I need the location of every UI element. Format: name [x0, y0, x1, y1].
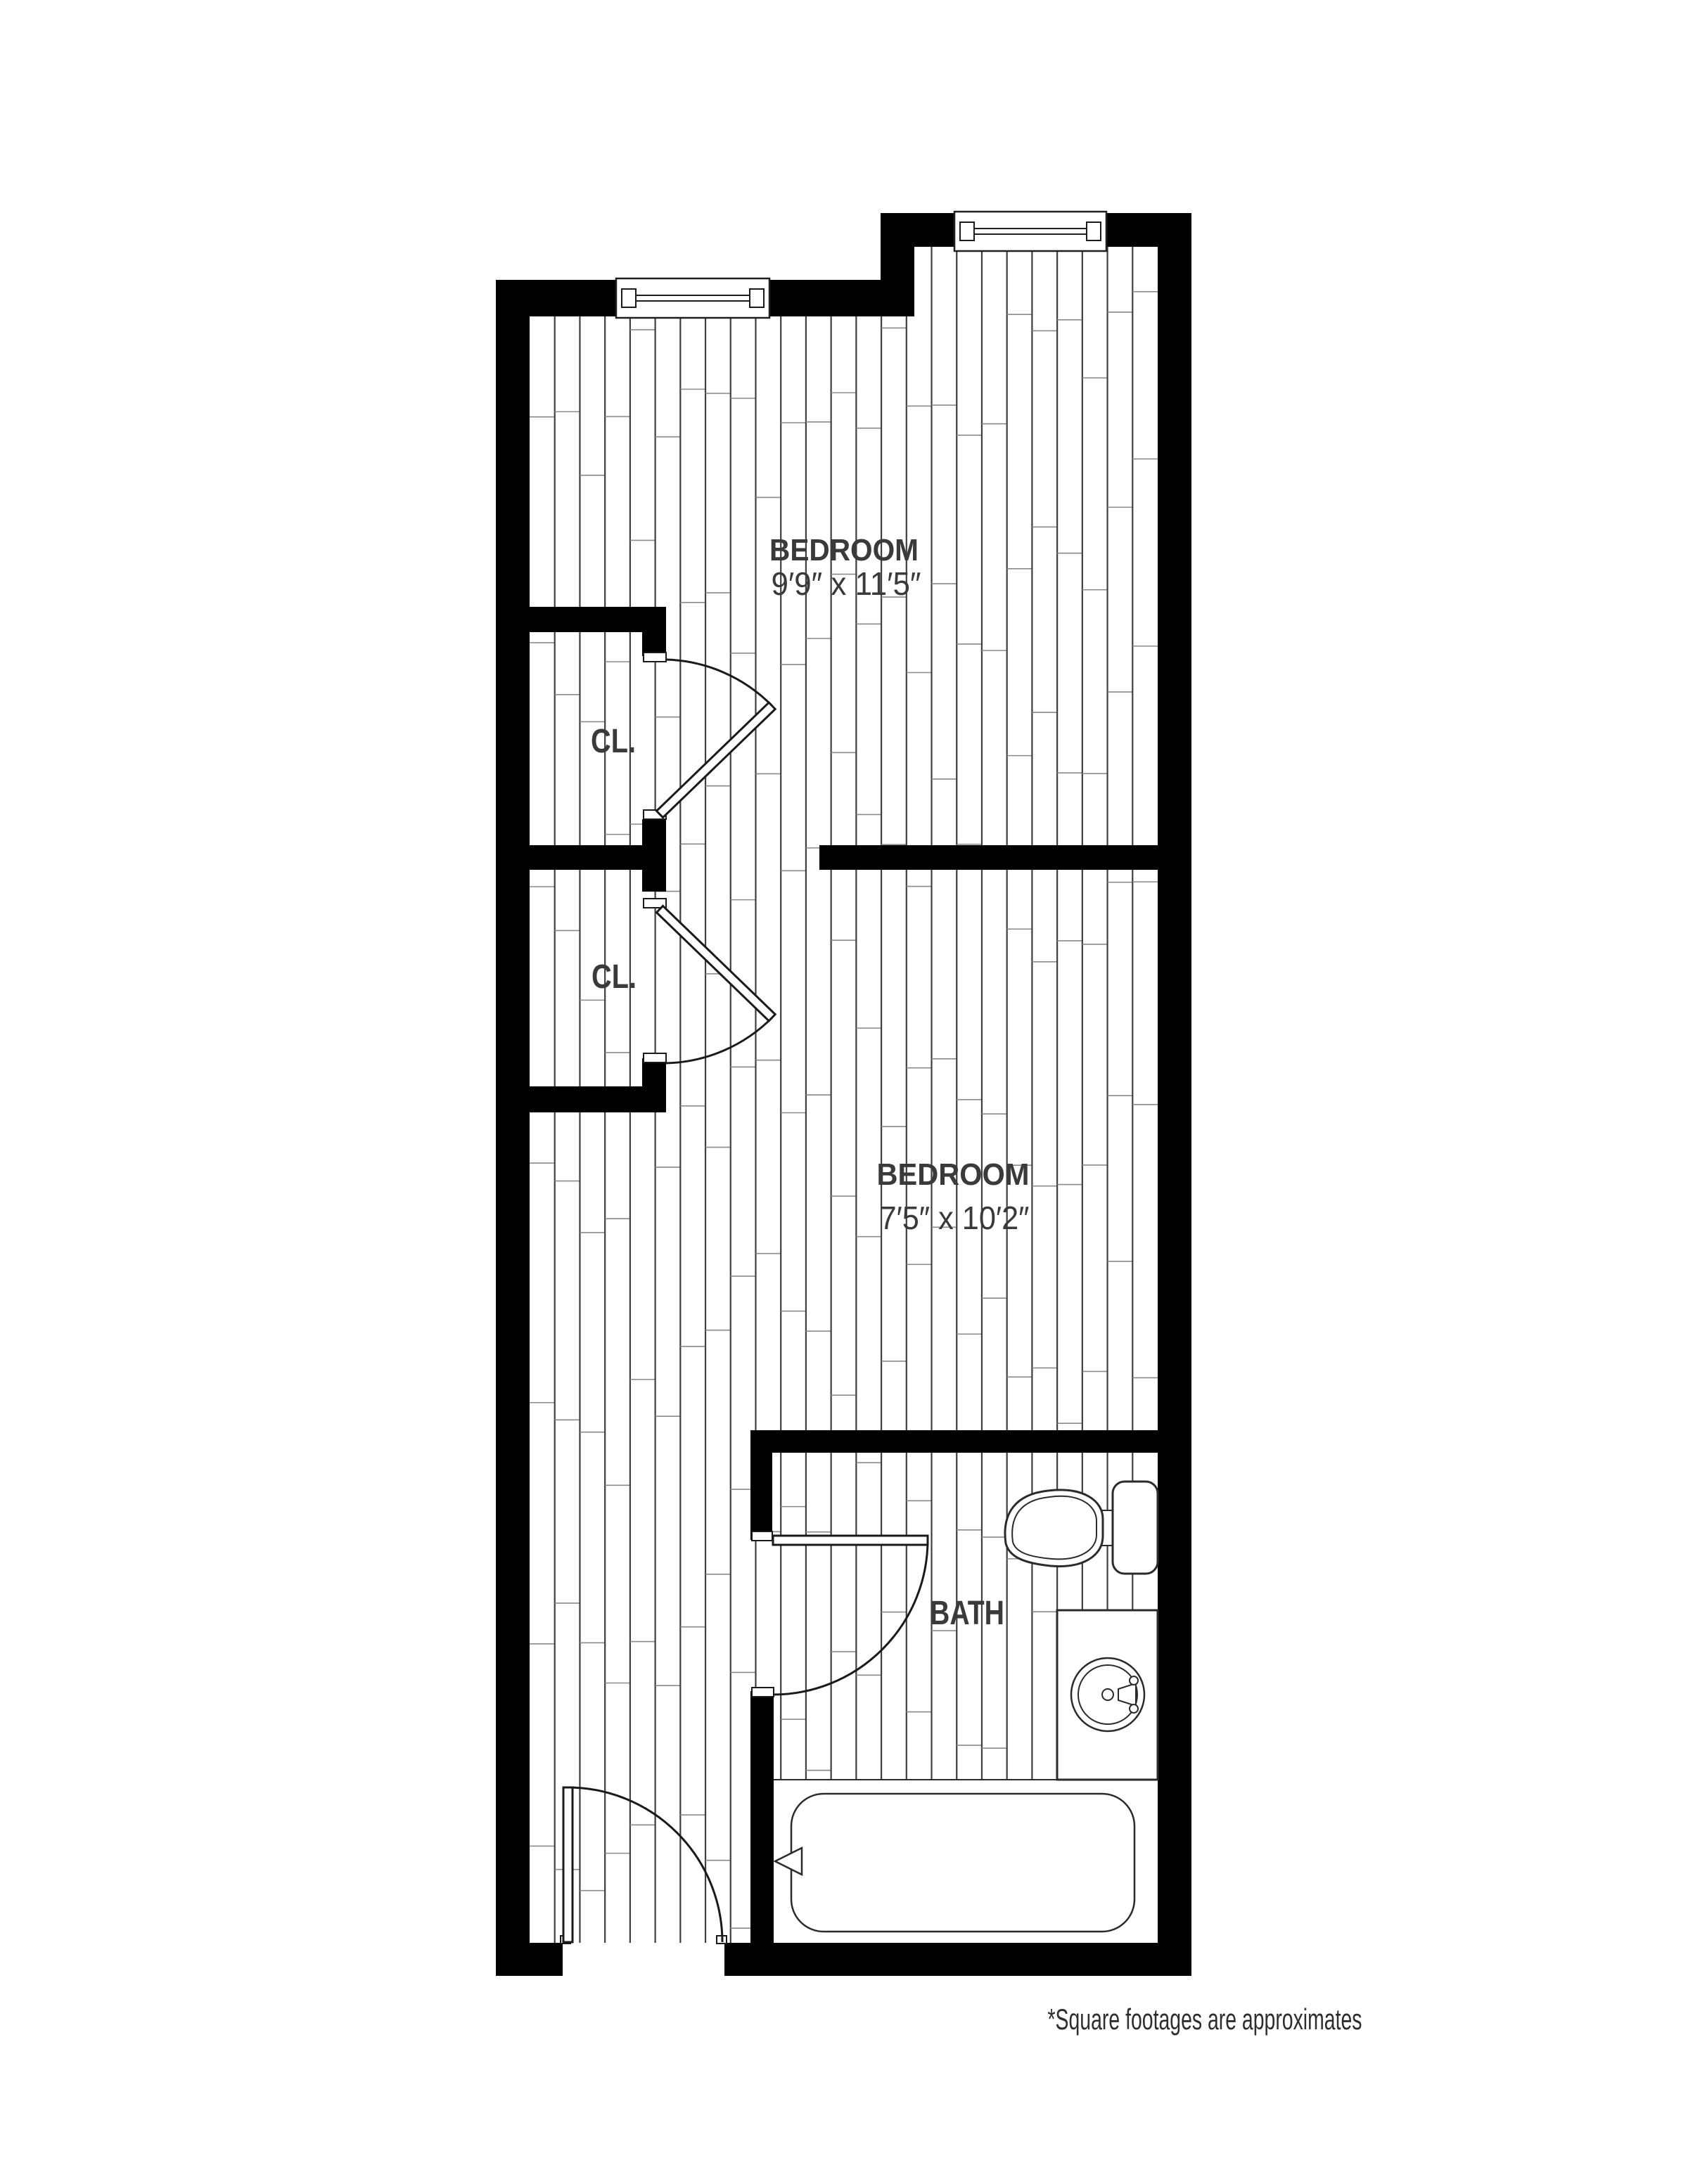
closet-1-label: CL.	[591, 723, 636, 760]
bottom-wall-right-segment	[724, 1943, 1191, 1976]
window-frame-end	[750, 289, 764, 307]
door-jamb	[644, 653, 666, 662]
bedroom-2-dimensions: 7′5″ x 10′2″	[880, 1200, 1030, 1236]
tub-outline	[791, 1794, 1134, 1932]
toilet-icon	[1005, 1482, 1158, 1574]
window-2	[954, 212, 1106, 251]
bath-left-wall-lower	[750, 1691, 774, 1943]
window-frame-end	[1087, 222, 1101, 240]
closet-mid-stub	[642, 819, 666, 892]
closet-2-door-stub	[642, 1058, 666, 1112]
closet-mid-wall	[530, 845, 642, 870]
bedroom-divider-wall	[819, 845, 1158, 870]
right-exterior-wall	[1158, 213, 1191, 1976]
bedroom-1-label: BEDROOM	[769, 533, 919, 567]
left-exterior-wall	[496, 280, 530, 1976]
closet-2-label: CL.	[592, 958, 637, 996]
door-leaf	[563, 1787, 573, 1942]
bedroom-1-dimensions: 9′9″ x 11′5″	[772, 565, 921, 602]
door-leaf	[773, 1536, 928, 1545]
toilet-bowl-outer	[1005, 1490, 1103, 1567]
floor-plan-drawing: BEDROOM 9′9″ x 11′5″ BEDROOM 7′5″ x 10′2…	[0, 0, 1688, 2184]
faucet-handle	[1130, 1704, 1138, 1713]
bath-label: BATH	[930, 1595, 1004, 1632]
faucet-handle	[1130, 1676, 1138, 1685]
bath-top-wall	[750, 1430, 1158, 1453]
bottom-wall-left-segment	[496, 1943, 563, 1976]
window-1	[616, 278, 769, 318]
bathtub-icon	[775, 1794, 1134, 1932]
toilet-tank	[1113, 1482, 1158, 1574]
square-footage-footnote: *Square footages are approximates	[1048, 2003, 1362, 2036]
closet-1-door-stub	[642, 607, 666, 656]
door-jamb	[644, 1053, 666, 1062]
bedroom-2-label: BEDROOM	[877, 1157, 1030, 1192]
window-frame-end	[960, 222, 974, 240]
window-frame-end	[622, 289, 636, 307]
sink-drain	[1102, 1689, 1113, 1700]
door-jamb	[752, 1531, 772, 1541]
door-jamb	[752, 1688, 774, 1697]
floor-plan-page: BEDROOM 9′9″ x 11′5″ BEDROOM 7′5″ x 10′2…	[0, 0, 1688, 2184]
bath-left-wall-upper	[750, 1430, 772, 1540]
sink-vanity-icon	[1057, 1610, 1158, 1780]
